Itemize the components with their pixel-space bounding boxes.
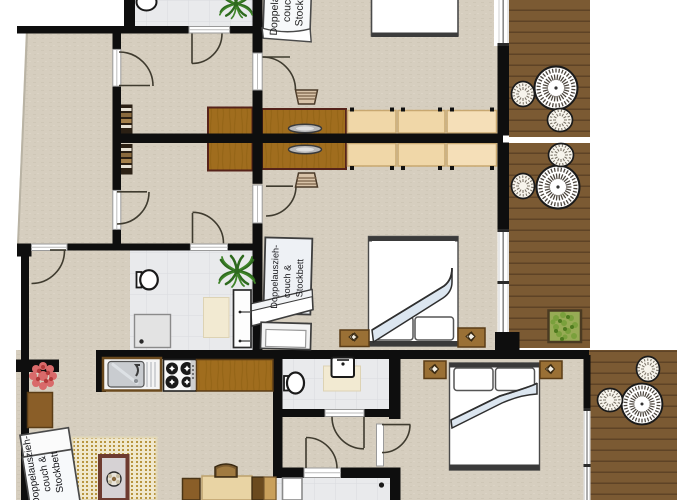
svg-text:couch &: couch & — [282, 265, 293, 298]
svg-text:Doppelau: Doppelau — [268, 0, 282, 36]
svg-text:couch: couch — [281, 0, 294, 22]
svg-text:Stock: Stock — [293, 0, 306, 27]
svg-text:Stockbett: Stockbett — [294, 258, 305, 297]
svg-text:Doppelauszieh-: Doppelauszieh- — [269, 245, 281, 309]
